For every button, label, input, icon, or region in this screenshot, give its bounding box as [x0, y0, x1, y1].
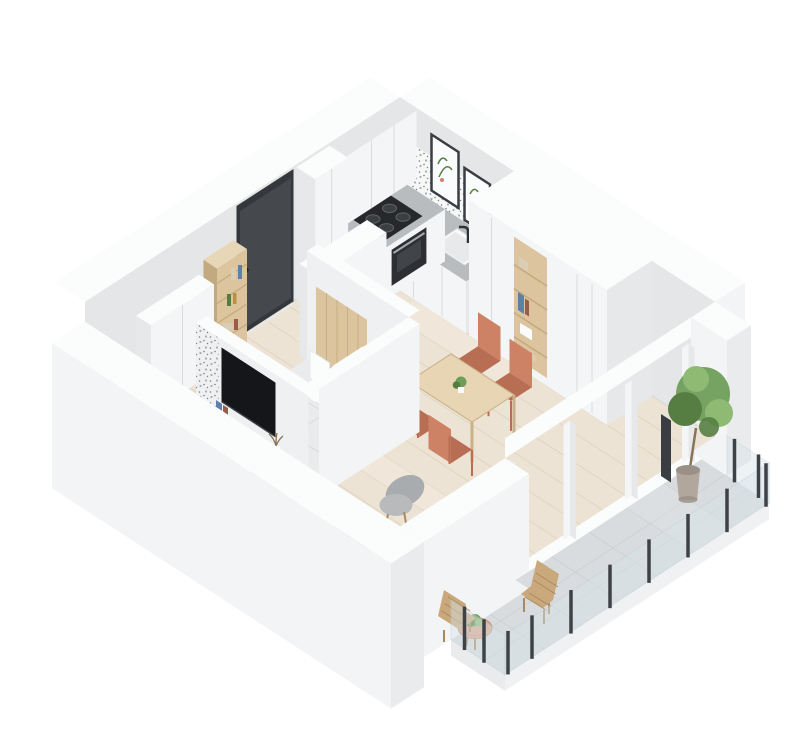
- glass-wall-mullion-2: [625, 381, 638, 500]
- floorplan-page: Isometric 3D cutaway floor plan of a sma…: [0, 0, 800, 740]
- wall-sw-end-cap: [391, 542, 424, 709]
- floorplan-render: Isometric 3D cutaway floor plan of a sma…: [0, 0, 800, 740]
- outdoor-heater: [661, 414, 671, 483]
- glass-wall-mullion-3: [564, 421, 577, 540]
